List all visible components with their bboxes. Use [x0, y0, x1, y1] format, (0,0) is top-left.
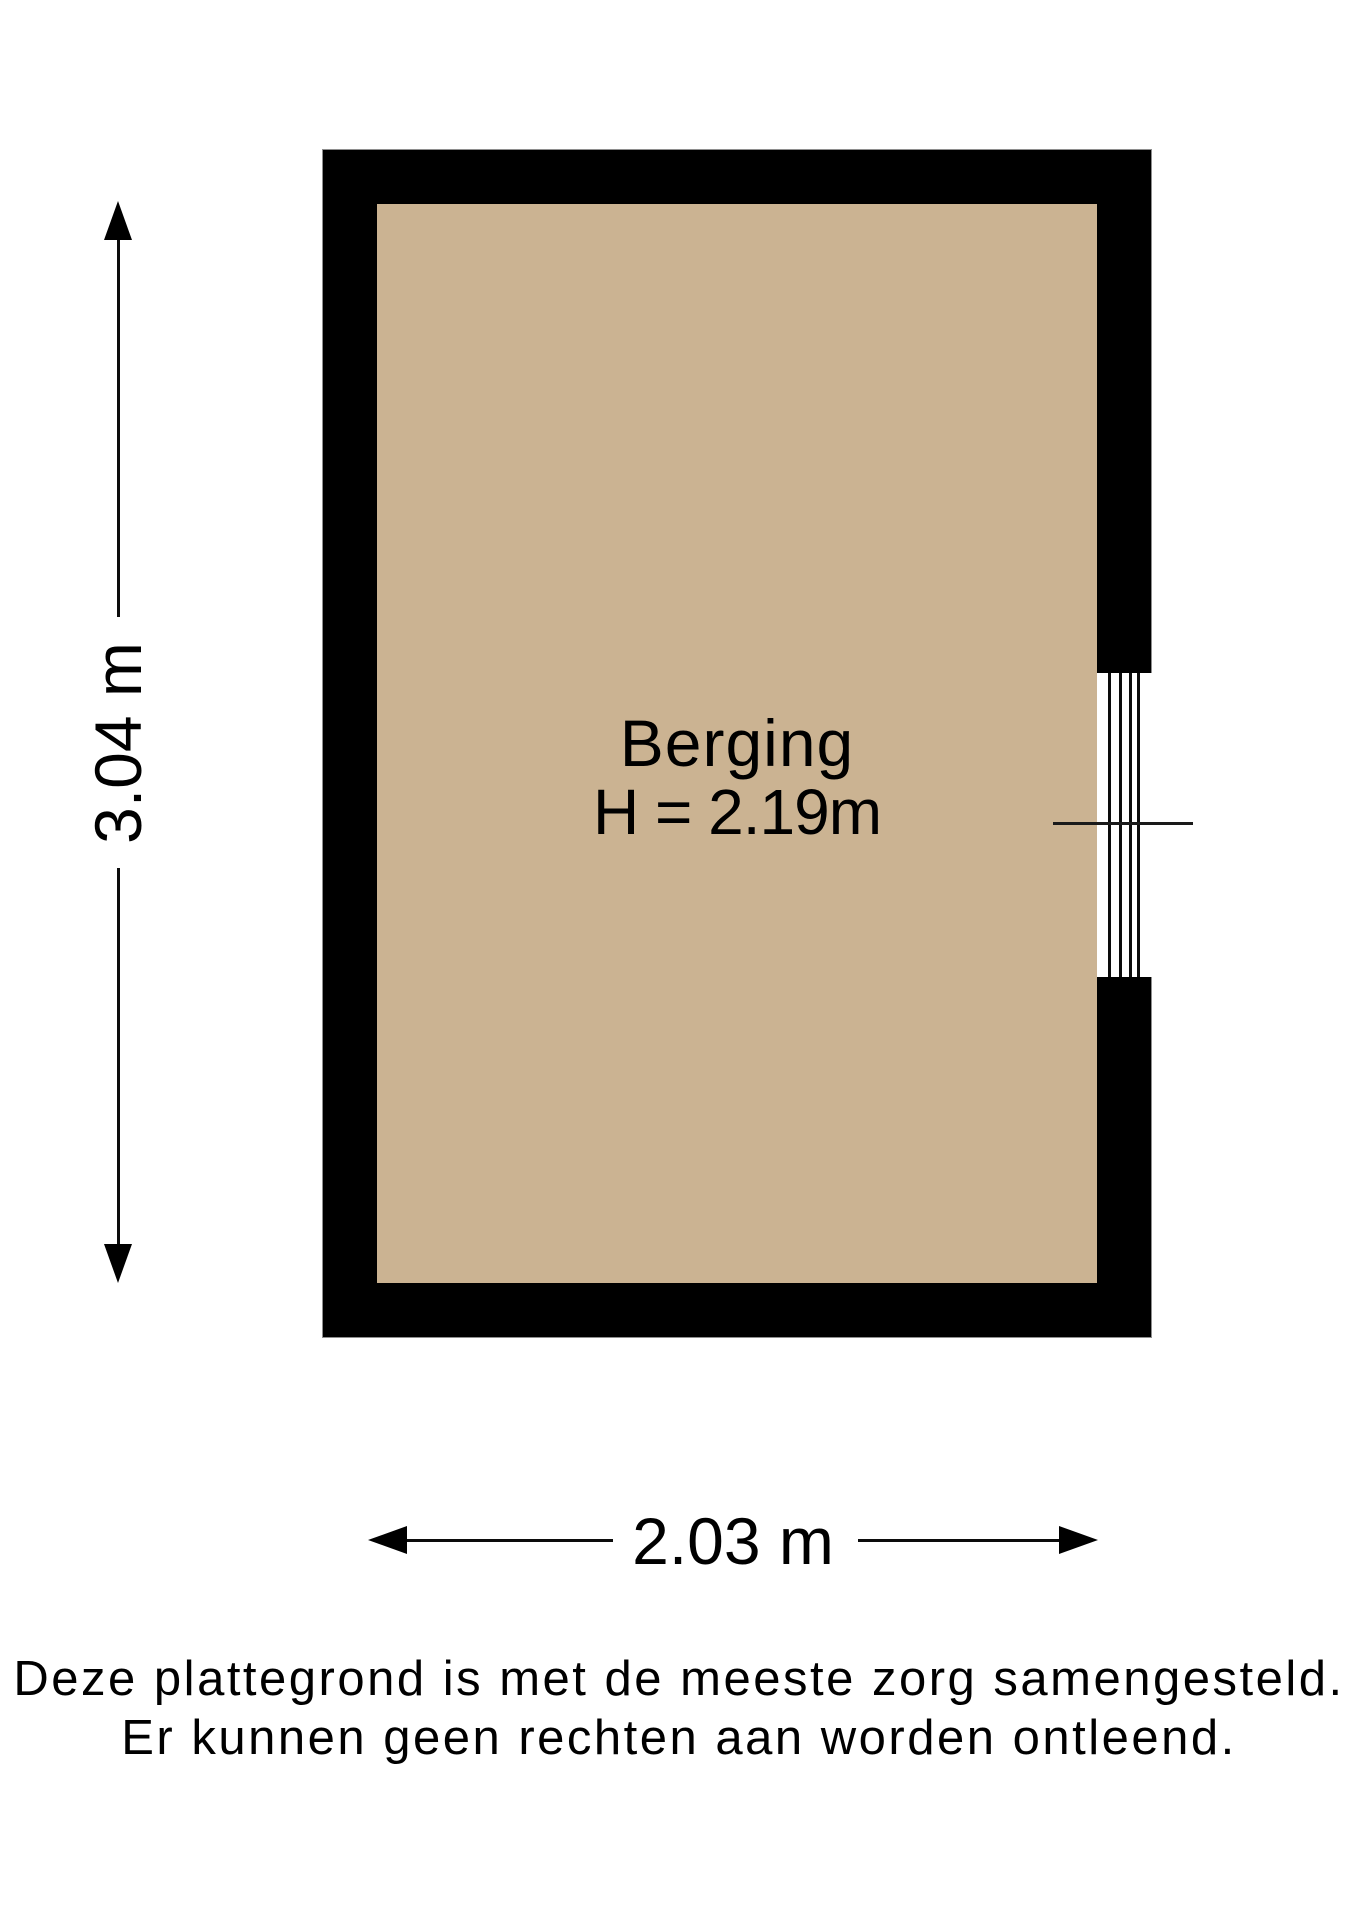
vertical-dimension-label: 3.04 m: [82, 593, 154, 893]
arrow-down-icon: [104, 1244, 132, 1283]
window-glazing-line: [1129, 673, 1132, 977]
room-name-label: Berging: [437, 705, 1037, 781]
disclaimer-line-1: Deze plattegrond is met de meeste zorg s…: [0, 1650, 1358, 1709]
arrow-right-icon: [1059, 1526, 1098, 1554]
vertical-dimension-line: [117, 235, 120, 617]
disclaimer: Deze plattegrond is met de meeste zorg s…: [0, 1650, 1358, 1768]
arrow-left-icon: [368, 1526, 407, 1554]
window-center-line: [1053, 822, 1193, 825]
window-opening: [1097, 673, 1155, 977]
window-glazing-line: [1108, 673, 1111, 977]
floorplan-canvas: Berging H = 2.19m 3.04 m 2.03 m Deze pla…: [0, 0, 1358, 1920]
arrow-up-icon: [104, 201, 132, 240]
window-glazing-line: [1137, 673, 1140, 977]
horizontal-dimension-label: 2.03 m: [433, 1505, 1033, 1577]
vertical-dimension-line: [117, 868, 120, 1250]
room-height-label: H = 2.19m: [437, 779, 1037, 845]
window-glazing-line: [1119, 673, 1122, 977]
disclaimer-line-2: Er kunnen geen rechten aan worden ontlee…: [0, 1709, 1358, 1768]
